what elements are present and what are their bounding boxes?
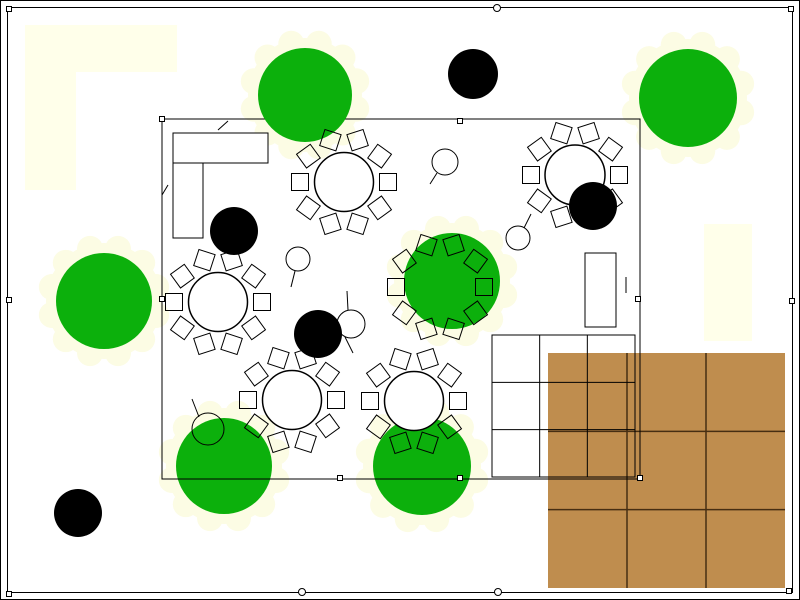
cabinet (585, 253, 616, 327)
mic-stand-leg (524, 214, 531, 228)
black-shrub-circle (294, 310, 342, 358)
chair (611, 167, 628, 184)
mic-stand-head (286, 247, 310, 271)
grip-marker (638, 476, 643, 481)
black-shrub-circle (54, 489, 102, 537)
chair (328, 392, 345, 409)
chair (347, 213, 368, 234)
grip-marker (636, 297, 641, 302)
chair (380, 174, 397, 191)
black-shrub-circle (569, 182, 617, 230)
chair (368, 144, 392, 168)
grip-marker (160, 297, 165, 302)
mic-stand-leg (345, 337, 353, 353)
chair (295, 431, 316, 452)
chair (221, 333, 242, 354)
edge-circle-marker (495, 589, 502, 596)
chair (551, 122, 572, 143)
chair (242, 316, 266, 340)
chair (523, 167, 540, 184)
grip-marker (790, 299, 795, 304)
l-counter (173, 163, 203, 238)
banquet-table (189, 273, 248, 332)
chair (194, 333, 215, 354)
grip-marker (7, 592, 12, 597)
chair (367, 363, 391, 387)
mic-stand-head (432, 149, 458, 175)
chair (390, 348, 411, 369)
mic-stand-leg (291, 271, 295, 287)
chair (242, 264, 266, 288)
chair (292, 174, 309, 191)
cream-hatch-area (25, 25, 177, 72)
mic-stand-leg (347, 291, 348, 310)
chair (599, 137, 623, 161)
tree (404, 233, 500, 329)
chair (166, 294, 183, 311)
black-shrub-circle (210, 207, 258, 255)
mic-stand-head (506, 226, 530, 250)
chair (362, 393, 379, 410)
chair (368, 196, 392, 220)
grip-marker (338, 476, 343, 481)
edge-circle-marker (494, 5, 501, 12)
tree (258, 48, 352, 142)
grip-marker (458, 119, 463, 124)
l-counter (173, 133, 268, 163)
mic-stand-head (337, 310, 365, 338)
edge-circle-marker (299, 589, 306, 596)
chair (578, 122, 599, 143)
mic-stand-leg (192, 399, 199, 417)
tree (56, 253, 152, 349)
chair (320, 213, 341, 234)
grip-marker (458, 476, 463, 481)
site-plan-stage (0, 0, 800, 600)
grip-marker (787, 589, 792, 594)
tree (639, 49, 737, 147)
banquet-table (263, 371, 322, 430)
chair (551, 206, 572, 227)
cream-hatch-area (25, 72, 76, 190)
chair (245, 362, 269, 386)
banquet-table (315, 153, 374, 212)
banquet-table (385, 372, 444, 431)
grip-marker (789, 7, 794, 12)
door-tick (162, 185, 168, 195)
black-shrub-circle (448, 49, 498, 99)
chair (297, 196, 321, 220)
chair (417, 348, 438, 369)
mic-stand-leg (430, 173, 437, 184)
chair (171, 316, 195, 340)
grip-marker (160, 117, 165, 122)
chair (268, 347, 289, 368)
chair (316, 362, 340, 386)
site-plan-drawing (0, 0, 800, 600)
chair (528, 189, 552, 213)
chair (316, 414, 340, 438)
grip-marker (7, 7, 12, 12)
cream-hatch-area (704, 224, 752, 341)
deck (548, 353, 785, 588)
chair (171, 264, 195, 288)
chair (438, 363, 462, 387)
chair (194, 249, 215, 270)
chair (450, 393, 467, 410)
chair (254, 294, 271, 311)
door-tick (218, 121, 228, 130)
chair (528, 137, 552, 161)
grip-marker (7, 298, 12, 303)
